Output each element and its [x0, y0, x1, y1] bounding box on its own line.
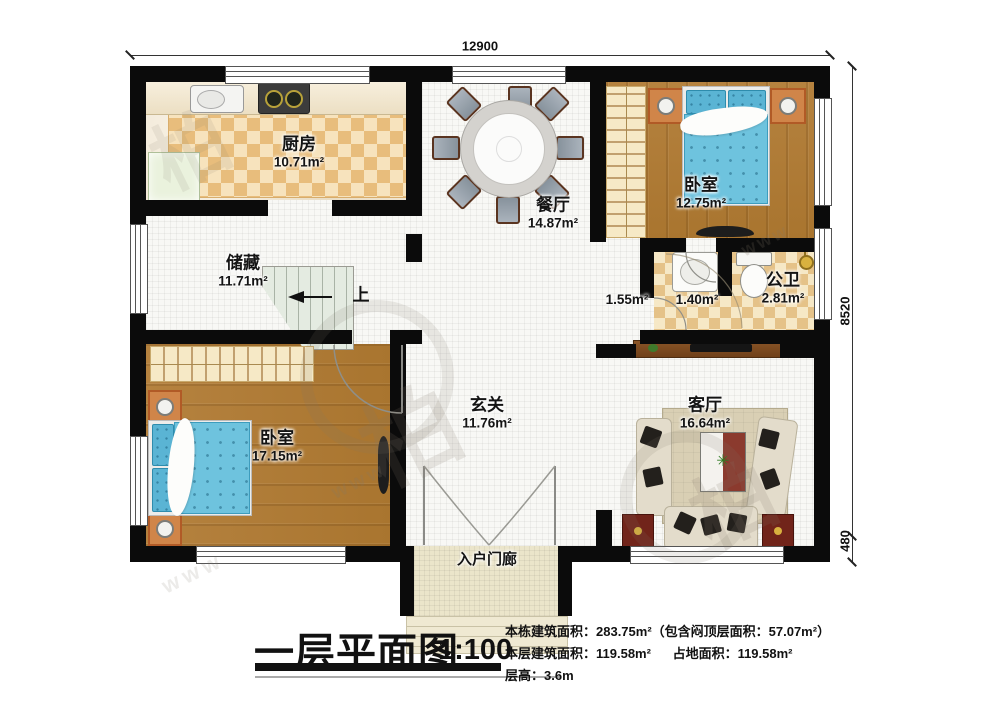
window	[130, 436, 148, 526]
building-area-line: 本栋建筑面积：283.75m²（包含闷顶层面积：57.07m²）	[505, 621, 925, 643]
room-label-hall: 玄关 11.76m²	[462, 396, 512, 433]
dining-wall	[406, 82, 422, 202]
window	[196, 546, 346, 564]
porch-wall-right	[558, 546, 572, 616]
dimension-height: 8520	[838, 297, 853, 326]
plan-info: 本栋建筑面积：283.75m²（包含闷顶层面积：57.07m²） 本层建筑面积：…	[505, 621, 925, 686]
dining-table-center	[496, 136, 522, 162]
floor-area-line: 本层建筑面积：119.58m² 占地面积：119.58m²	[505, 643, 925, 665]
kitchen-wall	[332, 200, 422, 216]
bedroom-wall	[640, 238, 686, 252]
room-label-porch: 入户门廊	[457, 551, 517, 569]
watermark-ring	[300, 300, 454, 454]
area-label-washroom: 1.40m²	[676, 292, 719, 308]
living-room-wall	[596, 344, 636, 358]
room-label-kitchen: 厨房 10.71m²	[274, 135, 324, 172]
window	[814, 98, 832, 206]
window	[814, 228, 832, 320]
nightstand	[148, 512, 182, 546]
room-label-dining: 餐厅 14.87m²	[528, 196, 578, 233]
wardrobe	[150, 346, 314, 382]
tv	[696, 226, 754, 237]
bathroom-wall	[640, 330, 830, 344]
room-label-bedroom-top: 卧室 12.75m²	[676, 176, 726, 213]
wardrobe	[606, 86, 646, 238]
watermark-ring	[620, 430, 754, 564]
porch-wall-left	[400, 546, 414, 616]
tv	[690, 344, 752, 352]
bathroom-sink	[672, 252, 718, 292]
window	[130, 224, 148, 314]
nightstand	[148, 390, 182, 424]
dimension-width: 12900	[462, 39, 498, 54]
kitchen-stove	[258, 82, 310, 114]
window	[452, 66, 566, 84]
dimension-height-step: 480	[838, 530, 853, 552]
plant-icon	[648, 344, 658, 352]
dining-chair	[432, 136, 460, 160]
area-label-corridor: 1.55m²	[606, 292, 649, 308]
bedroom-wall	[716, 238, 830, 252]
dining-chair	[556, 136, 584, 160]
nightstand	[648, 88, 684, 124]
room-label-bedroom-bottom: 卧室 17.15m²	[252, 429, 302, 466]
nightstand	[770, 88, 806, 124]
fridge	[148, 152, 200, 202]
room-label-bathroom: 公卫 2.81m²	[762, 271, 805, 308]
floor-plan: 柏 柏 柏 www www www 厨房 10.71m² 餐厅 14.87m² …	[0, 0, 1000, 706]
window	[225, 66, 370, 84]
side-table	[762, 514, 794, 548]
bedroom-wall	[590, 82, 606, 242]
floor-area: 本层建筑面积：119.58m²	[505, 646, 651, 661]
room-label-storage: 储藏 11.71m²	[218, 254, 268, 291]
stairs-up-label: 上	[353, 281, 370, 306]
stairs-arrow-tail	[302, 296, 332, 298]
title-underline	[255, 663, 501, 671]
bathroom-divider-wall	[718, 252, 732, 296]
dining-chair	[496, 196, 520, 224]
dining-wall	[406, 234, 422, 262]
wall-stub	[596, 510, 612, 546]
dimension-line-top	[130, 55, 830, 56]
living-room-wall	[780, 344, 814, 358]
floor-height-line: 层高：3.6m	[505, 665, 925, 687]
shower-head-icon	[799, 255, 814, 270]
kitchen-wall	[146, 200, 268, 216]
room-label-living: 客厅 16.64m²	[680, 396, 730, 433]
kitchen-sink	[190, 85, 244, 113]
footprint-area: 占地面积：119.58m²	[673, 646, 793, 661]
